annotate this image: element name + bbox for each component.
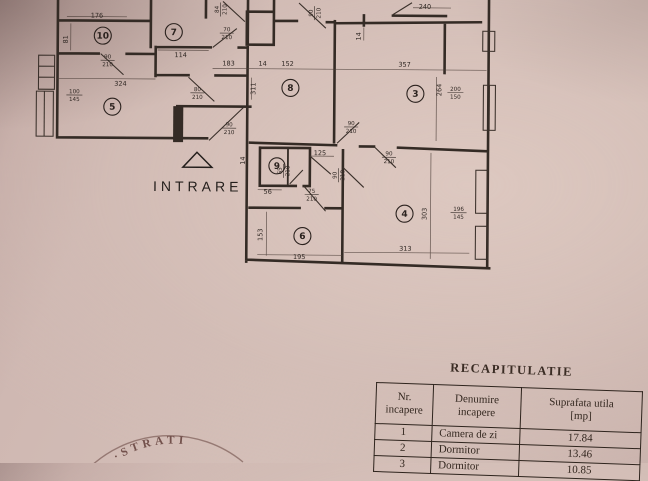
room-number: 7 [171,28,177,38]
wall-pier [173,106,183,142]
room-badge-3: 3 [407,85,424,102]
dimension-label: 183 [222,59,234,67]
door-size-label: 80210 [190,87,204,101]
door-size-label: 70210 [220,27,234,41]
svg-text:90: 90 [333,171,339,179]
svg-text:210: 210 [224,130,235,136]
svg-text:210: 210 [223,4,229,15]
walls [56,0,491,268]
dimension-label: 311 [249,82,257,94]
svg-text:65: 65 [278,167,284,175]
dimension-label: 56 [264,188,272,196]
door-leaves [100,1,412,212]
door-size-label: 84210 [215,2,229,16]
window-size-label: 196145 [451,207,467,221]
door-size-label: 90210 [309,6,323,20]
door-size-label: 90210 [222,122,236,136]
svg-text:100: 100 [69,89,80,95]
header-denumire: Denumire incapere [432,384,521,428]
svg-text:210: 210 [102,62,113,68]
cell-nr: 2 [374,439,431,457]
door-size-label: 90210 [333,168,347,182]
window-size-label: 200150 [447,87,463,101]
svg-text:70: 70 [223,27,231,33]
room-badge-5: 5 [104,98,121,115]
cell-nr: 1 [375,423,432,441]
header-nr: Nr. incapere [375,383,433,426]
dimension-label: 324 [114,80,126,88]
svg-text:90: 90 [309,9,315,17]
door-size-label: 90210 [344,121,358,135]
svg-text:210: 210 [221,35,232,41]
dimension-label: 240 [419,3,431,11]
cell-nr: 3 [374,455,431,473]
room-number: 3 [412,90,418,100]
svg-text:145: 145 [453,215,464,221]
svg-text:150: 150 [450,95,461,101]
stamp-text: ·STRATI [112,435,188,463]
dimension-label: 303 [421,208,429,220]
dimension-lines [56,5,487,259]
room-number: 5 [109,103,115,113]
recap-title: RECAPITULATIE [376,358,646,382]
svg-text:80: 80 [194,87,202,93]
window-size-label: 100145 [66,89,82,103]
svg-text:90: 90 [385,151,393,157]
scanned-floorplan-page: { "floorplan": { "entrance_label": "INTR… [0,0,648,463]
svg-text:75: 75 [308,189,316,195]
dimension-label: 81 [62,35,70,43]
header-suprafata: Suprafata utila [mp] [520,388,642,433]
dimension-label: 125 [314,149,326,157]
cell-name: Dormitor [430,457,519,476]
dimension-label: 14 [355,32,363,40]
dimension-label: 153 [256,228,264,240]
dimension-label: 152 [281,60,293,68]
entrance-label: INTRARE [153,178,243,195]
room-number: 8 [287,84,293,94]
door-size-label: 75210 [305,189,319,203]
svg-text:210: 210 [285,165,291,176]
room-number: 6 [299,232,305,242]
svg-text:210: 210 [317,7,323,18]
room-number: 4 [401,210,407,220]
dimension-label: 357 [398,61,410,69]
cell-area: 10.85 [518,461,640,481]
entrance-arrow-icon [183,152,212,167]
svg-text:196: 196 [453,207,464,213]
svg-text:90: 90 [226,122,234,128]
svg-text:90: 90 [104,54,112,60]
room-badge-6: 6 [294,227,311,244]
svg-text:210: 210 [306,197,317,203]
room-badge-10: 10 [94,27,111,44]
svg-text:145: 145 [69,97,80,103]
dimension-label: 114 [174,51,186,59]
floor-plan: 10 7 5 8 3 9 6 4 176 81 114 183 14 152 3… [0,0,648,300]
svg-text:210: 210 [384,159,395,165]
dimension-label: 313 [399,245,411,253]
recap-table: Nr. incapere Denumire incapere Suprafata… [373,382,643,481]
svg-text:210: 210 [340,170,346,181]
svg-text:84: 84 [215,5,221,13]
room-number: 10 [96,32,109,42]
stamp-ring [86,436,243,463]
svg-text:210: 210 [346,129,357,135]
dimension-label: 14 [258,60,266,68]
dimension-label: 264 [435,84,443,96]
room-badge-8: 8 [282,79,299,96]
dimension-label: 14 [239,156,247,164]
room-badge-4: 4 [396,205,413,222]
door-size-label: 90210 [382,151,396,165]
dimension-label: 195 [293,253,305,261]
room-badge-7: 7 [165,24,182,41]
svg-text:210: 210 [192,95,203,101]
svg-text:200: 200 [450,87,461,93]
door-size-label: 90210 [101,54,115,68]
dimension-label: 176 [91,12,103,20]
svg-text:90: 90 [348,121,356,127]
